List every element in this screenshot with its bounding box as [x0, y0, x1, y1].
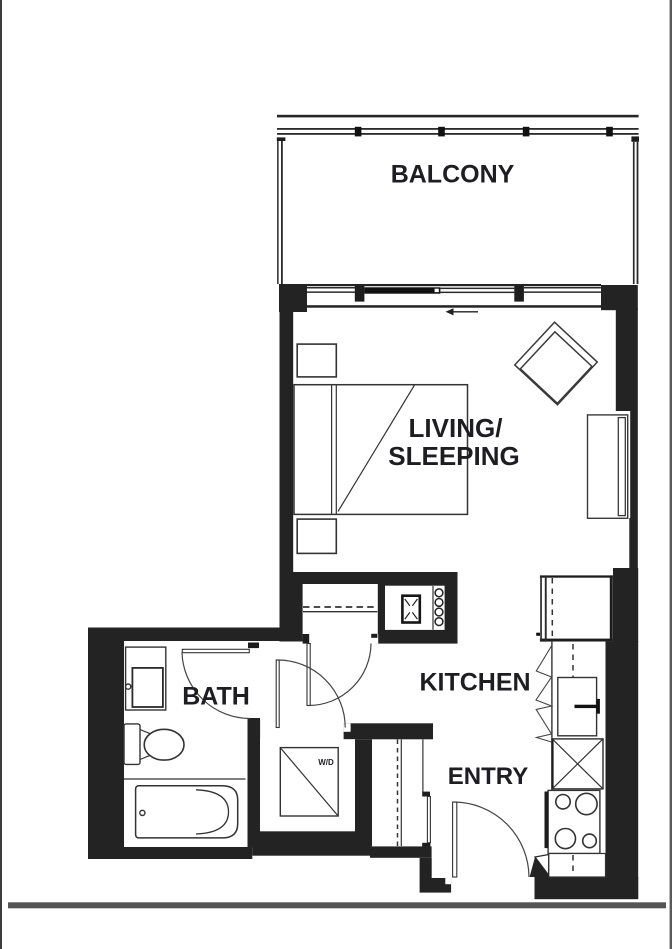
svg-text:BALCONY: BALCONY	[391, 161, 515, 189]
svg-text:W/D: W/D	[318, 758, 334, 767]
svg-text:LIVING/: LIVING/	[409, 413, 503, 443]
svg-text:KITCHEN: KITCHEN	[419, 669, 530, 697]
svg-text:ENTRY: ENTRY	[448, 763, 528, 790]
svg-text:BATH: BATH	[182, 682, 250, 710]
svg-text:SLEEPING: SLEEPING	[388, 441, 519, 471]
